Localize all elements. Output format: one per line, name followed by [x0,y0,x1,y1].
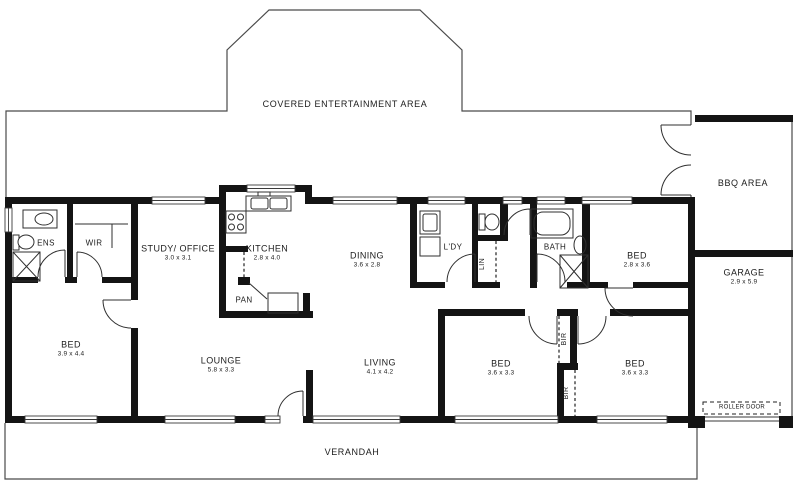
room-label-bed-four: BED 3.6 x 3.3 [622,359,649,378]
room-label-bath: BATH [544,242,566,251]
room-label-ens: ENS [37,238,55,247]
room-dims: 2.9 x 5.9 [724,279,765,286]
room-name: LIVING [364,358,396,368]
room-name: LOUNGE [201,356,241,366]
room-dims: 2.8 x 4.0 [246,255,288,262]
room-label-living: LIVING 4.1 x 4.2 [364,358,396,377]
room-label-linen: LIN [479,258,487,270]
room-dims: 3.6 x 3.3 [622,370,649,377]
room-name: BED [624,251,651,261]
stove-icon [226,211,246,233]
wc-toilet-icon [479,214,499,230]
room-dims: 2.8 x 3.6 [624,262,651,269]
label-covered-entertainment-area: COVERED ENTERTAINMENT AREA [263,99,428,109]
room-label-bir-top: BIR [561,333,569,346]
room-dims: 5.8 x 3.3 [201,367,241,374]
laundry-trough-icon [420,211,440,256]
room-dims: 4.1 x 4.2 [364,369,396,376]
ens-shower-icon [13,252,40,281]
room-label-lounge: LOUNGE 5.8 x 3.3 [201,356,241,375]
room-name: BED [58,340,85,350]
label-verandah: VERANDAH [325,447,380,457]
room-dims: 3.0 x 3.1 [141,255,215,262]
floor-plan: COVERED ENTERTAINMENT AREA BBQ AREA VERA… [0,0,800,488]
room-label-laundry: L'DY [444,242,463,251]
room-label-bir-bottom: BIR [563,387,571,400]
room-name: STUDY/ OFFICE [141,244,215,254]
exterior-walls [5,115,793,428]
room-name: BED [488,359,515,369]
room-label-dining: DINING 3.6 x 2.8 [350,251,384,270]
room-label-garage: GARAGE 2.9 x 5.9 [724,268,765,287]
ens-vanity-icon [23,210,57,228]
label-bbq-area: BBQ AREA [718,178,768,188]
label-roller-door: ROLLER DOOR [719,405,765,412]
kitchen-sink-icon [246,192,291,211]
room-label-bed-right: BED 2.8 x 3.6 [624,251,651,270]
floor-plan-geometry [0,0,800,488]
room-label-pan: PAN [235,295,252,304]
room-name: BED [622,359,649,369]
room-label-bed-three: BED 3.6 x 3.3 [488,359,515,378]
room-label-study: STUDY/ OFFICE 3.0 x 3.1 [141,244,215,263]
room-name: GARAGE [724,268,765,278]
room-dims: 3.6 x 2.8 [350,262,384,269]
kitchen-bench-icon [268,293,298,313]
room-label-wir: WIR [86,238,103,247]
room-name: KITCHEN [246,244,288,254]
room-label-bed-master: BED 3.9 x 4.4 [58,340,85,359]
dashed-openings [244,241,575,416]
bathtub-icon [531,209,573,238]
room-dims: 3.6 x 3.3 [488,370,515,377]
room-name: DINING [350,251,384,261]
room-dims: 3.9 x 4.4 [58,351,85,358]
ens-toilet-icon [13,235,34,250]
interior-walls [5,185,695,423]
room-label-kitchen: KITCHEN 2.8 x 4.0 [246,244,288,263]
